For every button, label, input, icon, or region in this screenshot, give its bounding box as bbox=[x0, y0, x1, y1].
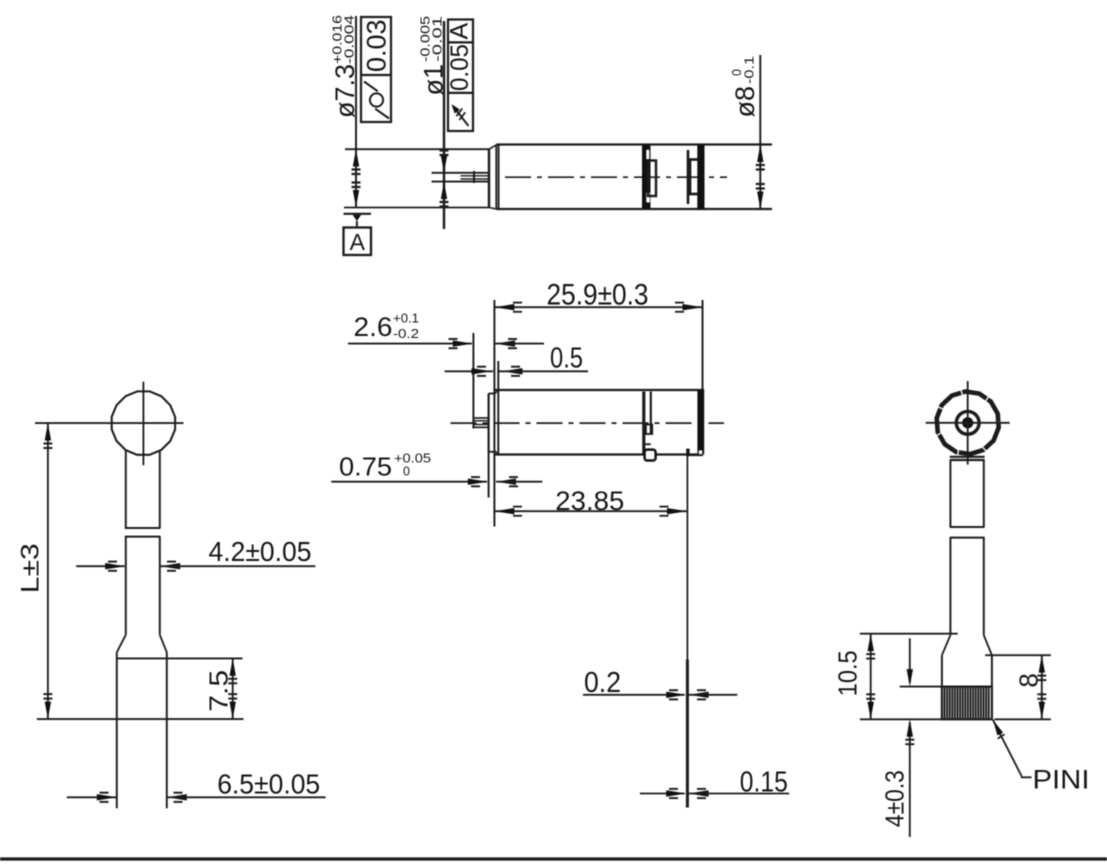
svg-text:0.75: 0.75 bbox=[339, 452, 392, 482]
svg-text:+0.1: +0.1 bbox=[393, 311, 419, 326]
svg-text:A: A bbox=[350, 229, 366, 255]
svg-text:-0.1: -0.1 bbox=[743, 56, 757, 84]
svg-text:0.03: 0.03 bbox=[362, 19, 392, 72]
svg-text:PINI: PINI bbox=[1033, 764, 1090, 794]
svg-text:-0.2: -0.2 bbox=[393, 326, 419, 341]
svg-text:ø8: ø8 bbox=[730, 86, 760, 118]
svg-text:0.05: 0.05 bbox=[446, 44, 474, 91]
svg-text:-0.004: -0.004 bbox=[343, 15, 357, 64]
svg-text:+0.05: +0.05 bbox=[394, 452, 431, 466]
svg-text:10.5: 10.5 bbox=[833, 650, 863, 696]
svg-text:L±3: L±3 bbox=[17, 543, 45, 593]
svg-text:0.5: 0.5 bbox=[550, 343, 583, 375]
svg-text:0: 0 bbox=[403, 465, 410, 479]
svg-text:4.2±0.05: 4.2±0.05 bbox=[209, 536, 312, 567]
svg-text:6.5±0.05: 6.5±0.05 bbox=[217, 768, 320, 799]
svg-text:2.6: 2.6 bbox=[354, 312, 393, 342]
svg-text:A: A bbox=[446, 23, 474, 40]
svg-text:4±0.3: 4±0.3 bbox=[882, 770, 910, 827]
svg-text:7.5: 7.5 bbox=[204, 670, 234, 712]
svg-text:-0.01: -0.01 bbox=[431, 16, 445, 62]
